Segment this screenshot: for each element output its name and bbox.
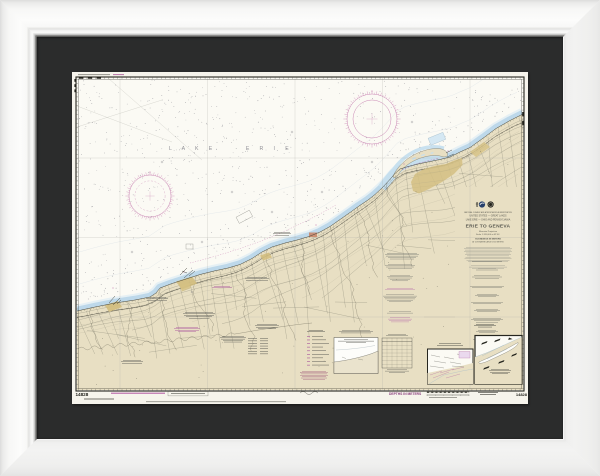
svg-text:L A K E E R I E: L A K E E R I E	[169, 146, 293, 152]
svg-text:AT LOW WATER DATUM 173.5 METER: AT LOW WATER DATUM 173.5 METERS	[472, 241, 504, 244]
svg-text:DEPTHS IN METERS: DEPTHS IN METERS	[389, 392, 422, 396]
svg-text:Scale 1:120,000 at 42°00´: Scale 1:120,000 at 42°00´	[476, 233, 500, 236]
svg-text:14828: 14828	[516, 392, 528, 397]
svg-text:SOUNDINGS IN METERS: SOUNDINGS IN METERS	[475, 239, 501, 241]
svg-text:NATIONAL OCEANIC AND ATMOSPHER: NATIONAL OCEANIC AND ATMOSPHERIC ADMINIS…	[464, 211, 512, 214]
svg-text:UNITED STATES — GREAT LAKES: UNITED STATES — GREAT LAKES	[469, 215, 507, 218]
svg-text:LAKE ERIE — OHIO AND PENNSYLVA: LAKE ERIE — OHIO AND PENNSYLVANIA	[466, 218, 511, 221]
svg-text:ERIE TO GENEVA: ERIE TO GENEVA	[466, 224, 511, 230]
svg-text:Mercator Projection: Mercator Projection	[479, 230, 498, 233]
svg-text:14828: 14828	[76, 392, 89, 397]
